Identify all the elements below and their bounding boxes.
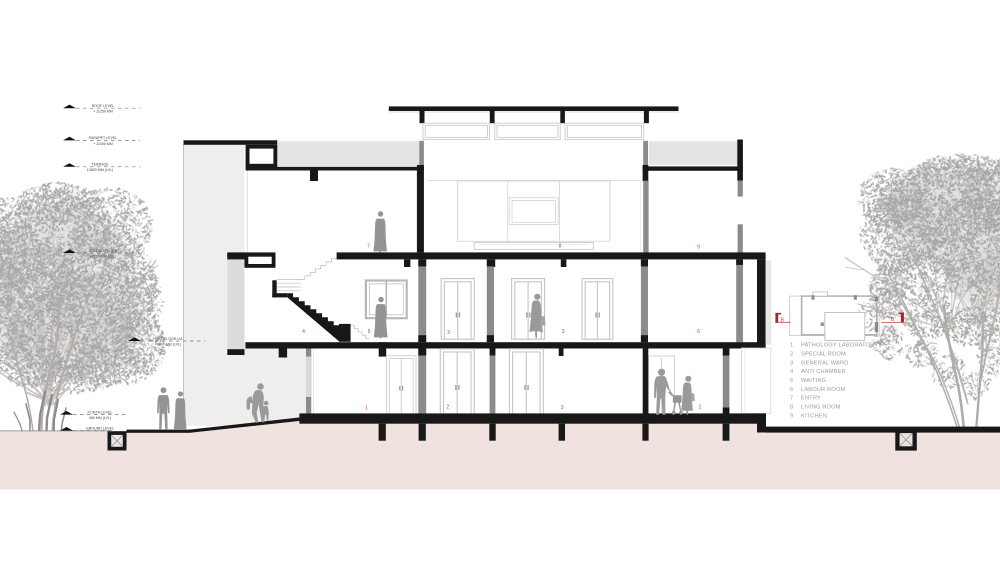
svg-text:KITCHEN: KITCHEN (801, 413, 827, 419)
svg-text:LIVING ROOM: LIVING ROOM (801, 405, 841, 411)
svg-text:3: 3 (790, 360, 793, 366)
svg-text:+3900 MM (LVL): +3900 MM (LVL) (155, 342, 182, 346)
svg-text:2: 2 (446, 404, 449, 410)
svg-text:B': B' (891, 317, 895, 323)
svg-text:7: 7 (367, 243, 370, 249)
svg-text:GENERAL WARD: GENERAL WARD (801, 360, 849, 366)
svg-text:3: 3 (562, 329, 565, 335)
svg-text:SPECIAL ROOM: SPECIAL ROOM (801, 352, 846, 358)
svg-text:ENTRY: ENTRY (801, 396, 821, 402)
svg-text:WAITING: WAITING (801, 378, 826, 384)
svg-text:2: 2 (447, 330, 450, 336)
svg-text:1: 1 (365, 405, 368, 411)
svg-text:GROUND LEVEL: GROUND LEVEL (86, 426, 114, 430)
svg-text:6: 6 (790, 387, 793, 393)
svg-text:TERRACE: TERRACE (91, 163, 109, 167)
svg-text:2: 2 (790, 352, 793, 358)
svg-text:PATHOLOGY LABORATORY: PATHOLOGY LABORATORY (801, 343, 878, 349)
svg-text:ROOF LEVEL: ROOF LEVEL (92, 104, 115, 108)
svg-text:+7200 MM (LVL): +7200 MM (LVL) (90, 254, 117, 258)
svg-text:8: 8 (559, 244, 562, 250)
svg-text:10600 MM (LVL): 10600 MM (LVL) (87, 168, 114, 172)
svg-text:LABOUR ROOM: LABOUR ROOM (801, 387, 845, 393)
svg-text:9: 9 (790, 413, 793, 419)
svg-text:3: 3 (561, 405, 564, 411)
svg-text:+ 11250 MM: + 11250 MM (93, 110, 113, 114)
svg-text:4: 4 (302, 329, 305, 335)
svg-text:8: 8 (790, 405, 793, 411)
svg-text:SECOND FLOOR: SECOND FLOOR (89, 249, 118, 253)
svg-text:450 MM (LVL): 450 MM (LVL) (89, 416, 112, 420)
svg-text:7: 7 (790, 396, 793, 402)
svg-text:PARAPET LEVEL: PARAPET LEVEL (89, 136, 118, 140)
svg-text:6: 6 (697, 329, 700, 335)
svg-text:+ 11000 MM: + 11000 MM (93, 142, 113, 146)
svg-text:2: 2 (699, 404, 702, 410)
svg-text:1: 1 (790, 343, 793, 349)
svg-text:5: 5 (790, 378, 793, 384)
svg-text:ANTI CHAMBER: ANTI CHAMBER (801, 369, 846, 375)
svg-text:PLINTH LEVEL: PLINTH LEVEL (88, 410, 113, 414)
svg-text:5: 5 (368, 329, 371, 335)
svg-text:FIRST FLOOR LVL: FIRST FLOOR LVL (153, 337, 184, 341)
svg-text:9: 9 (697, 244, 700, 250)
svg-text:4: 4 (790, 369, 793, 375)
